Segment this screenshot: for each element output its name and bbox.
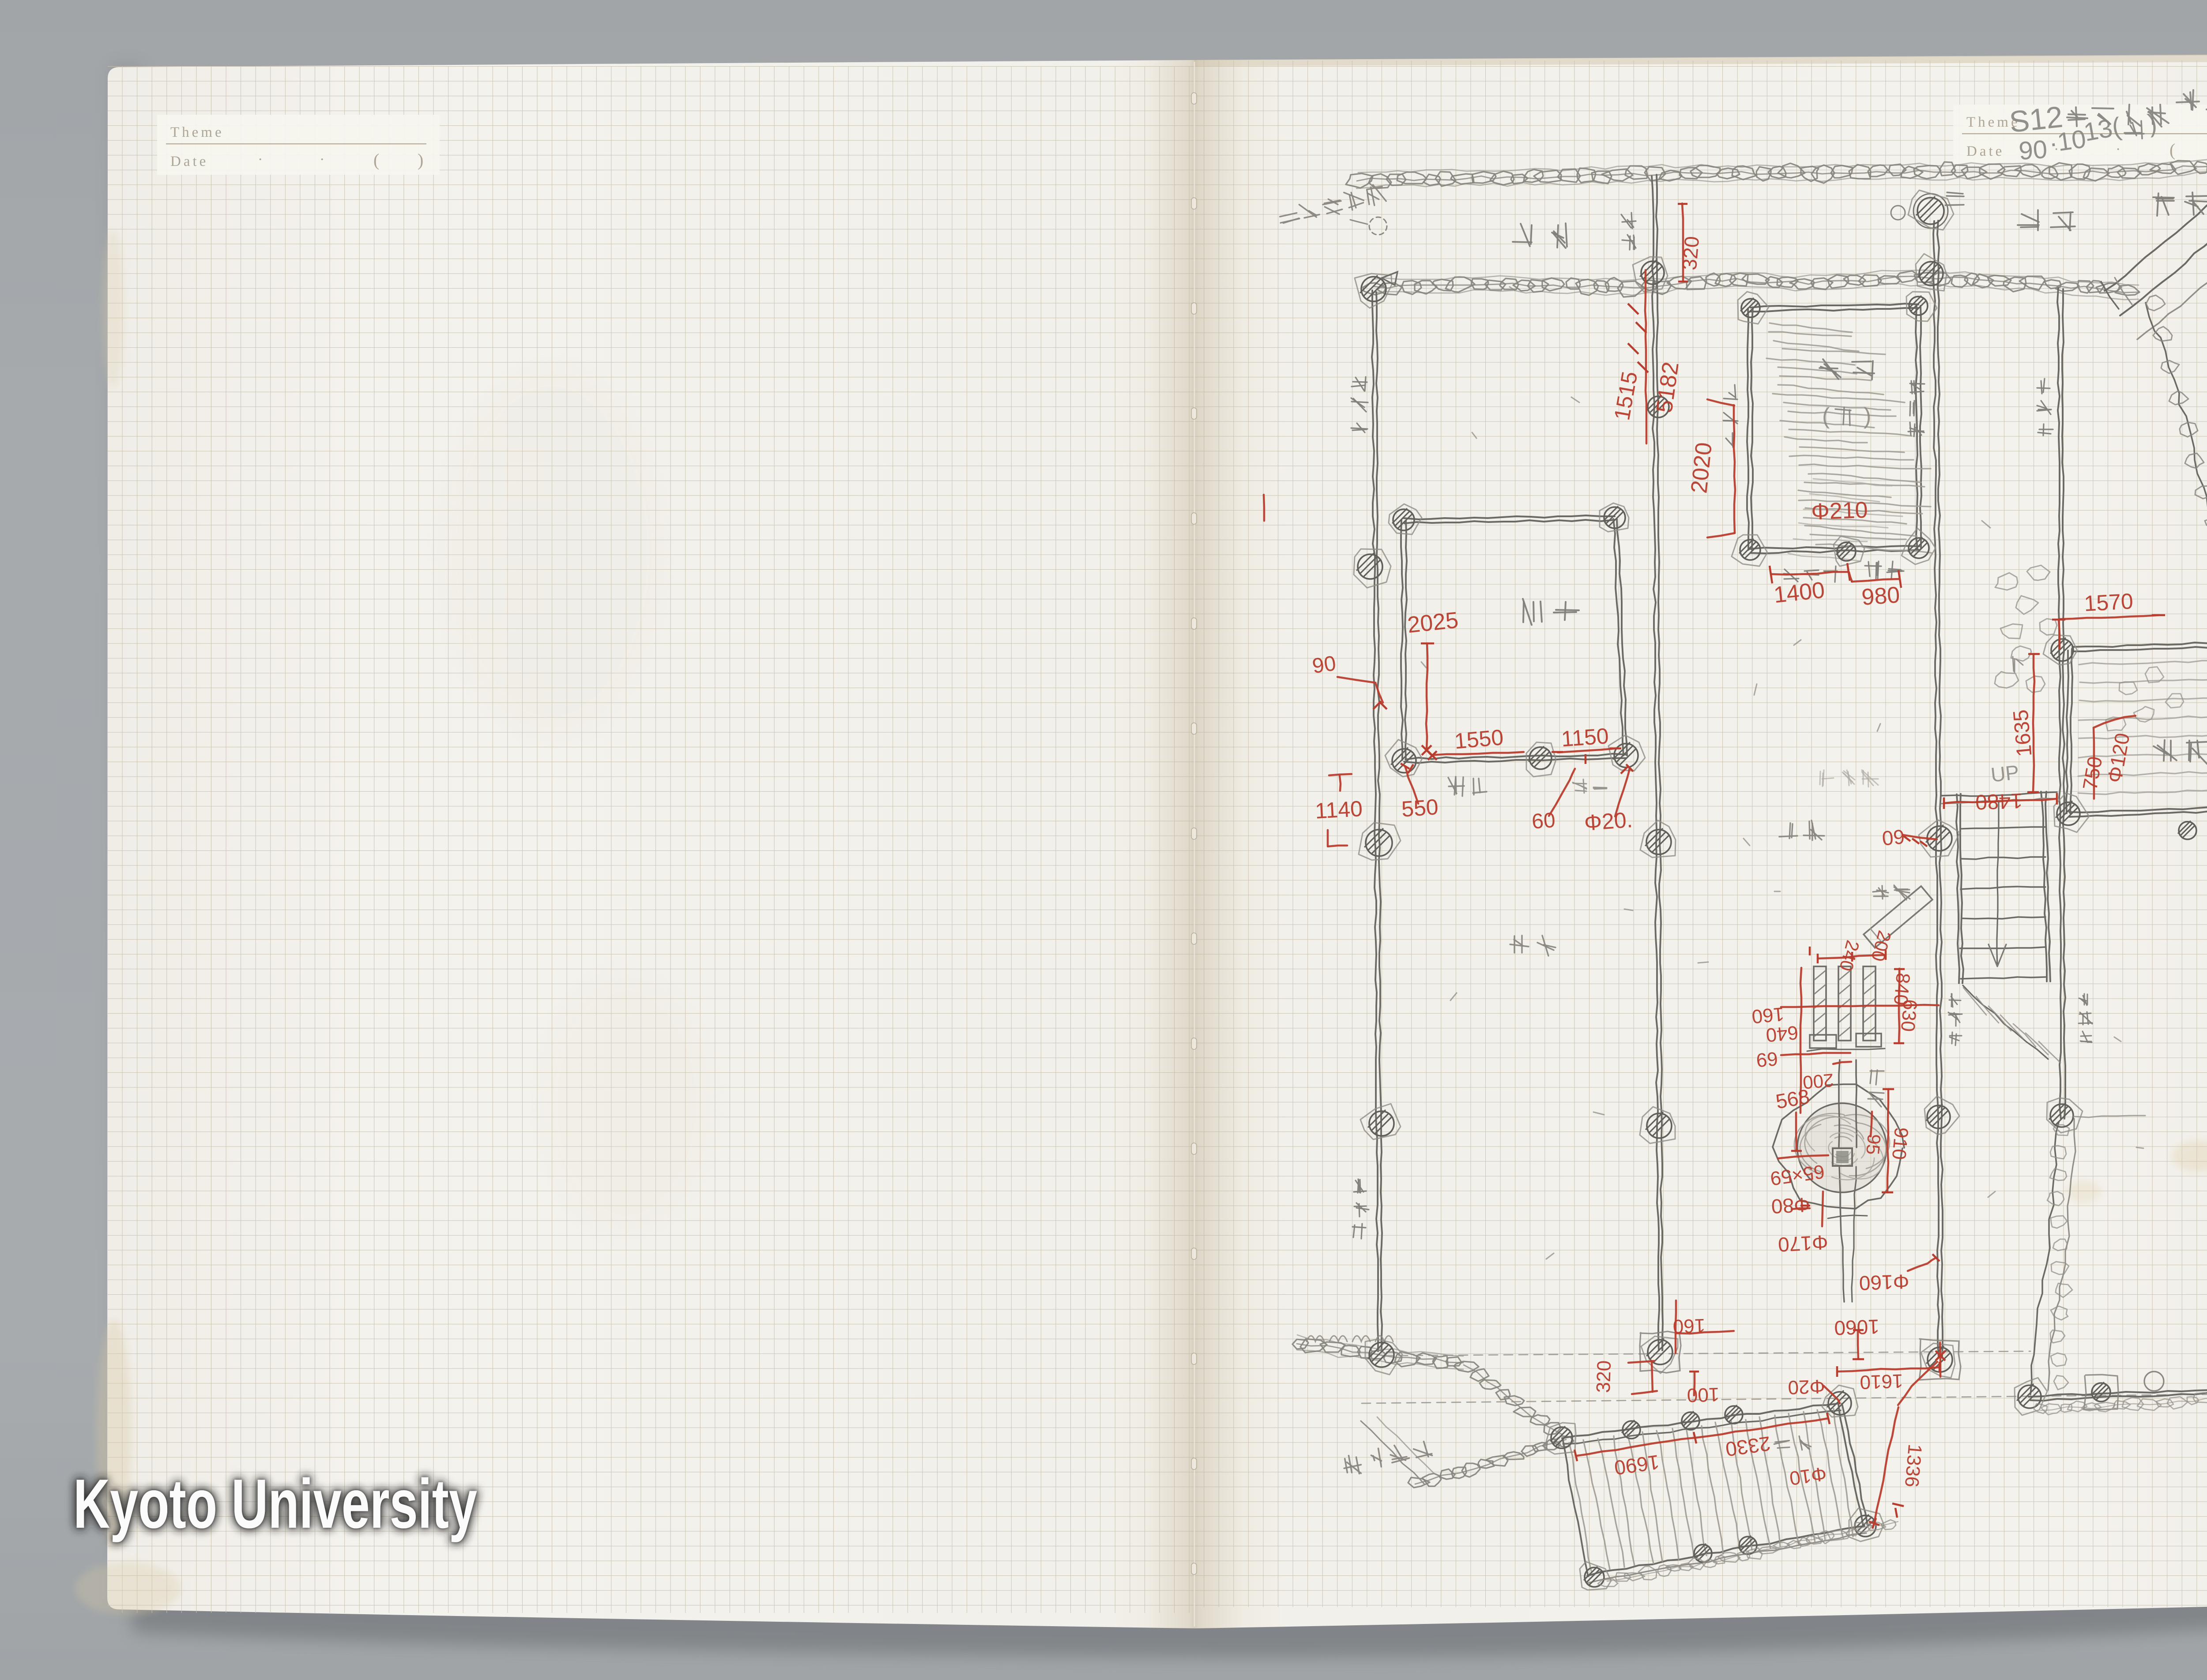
svg-text:UP: UP bbox=[1990, 761, 2020, 786]
svg-text:60: 60 bbox=[1881, 825, 1906, 850]
svg-text:Date: Date bbox=[1966, 143, 2004, 159]
svg-text:1060: 1060 bbox=[1834, 1315, 1880, 1340]
svg-text:1480: 1480 bbox=[1975, 789, 2023, 814]
svg-text:(: ( bbox=[373, 150, 379, 170]
svg-text:95: 95 bbox=[1862, 1133, 1885, 1156]
svg-text:60: 60 bbox=[1531, 808, 1556, 834]
svg-text:320: 320 bbox=[1593, 1360, 1616, 1393]
svg-text:Φ170: Φ170 bbox=[1778, 1231, 1829, 1256]
svg-text:·: · bbox=[2116, 141, 2120, 158]
svg-text:Date: Date bbox=[170, 154, 208, 169]
svg-text:69: 69 bbox=[1755, 1048, 1779, 1071]
svg-text:1150: 1150 bbox=[1560, 723, 1609, 751]
svg-text:): ) bbox=[1864, 403, 1871, 429]
svg-text:320: 320 bbox=[1678, 235, 1703, 271]
svg-text:90: 90 bbox=[2018, 135, 2048, 165]
svg-text:90: 90 bbox=[1311, 652, 1337, 678]
svg-text:640: 640 bbox=[1765, 1022, 1799, 1046]
svg-text:1570: 1570 bbox=[2083, 589, 2134, 616]
svg-text:·: · bbox=[258, 151, 263, 168]
svg-text:1140: 1140 bbox=[1314, 796, 1363, 823]
svg-text:Theme: Theme bbox=[170, 124, 224, 140]
svg-text:Φ160: Φ160 bbox=[1859, 1270, 1909, 1295]
svg-text:·10: ·10 bbox=[2047, 124, 2088, 158]
svg-text:980: 980 bbox=[1861, 582, 1901, 610]
svg-text:550: 550 bbox=[1401, 794, 1439, 822]
svg-text:Φ210: Φ210 bbox=[1811, 497, 1868, 525]
svg-text:2020: 2020 bbox=[1686, 441, 1717, 495]
svg-text:·: · bbox=[320, 151, 324, 168]
svg-text:1550: 1550 bbox=[1454, 725, 1505, 753]
svg-text:630: 630 bbox=[1897, 999, 1921, 1033]
svg-text:1336: 1336 bbox=[1901, 1443, 1926, 1488]
svg-text:1610: 1610 bbox=[1860, 1370, 1904, 1393]
svg-text:(: ( bbox=[2169, 140, 2175, 160]
svg-text:910: 910 bbox=[1888, 1127, 1912, 1161]
svg-text:Φ20: Φ20 bbox=[1788, 1376, 1826, 1398]
svg-text:100: 100 bbox=[1687, 1383, 1720, 1406]
svg-text:1635: 1635 bbox=[2009, 709, 2037, 758]
svg-text:Φ20.: Φ20. bbox=[1583, 807, 1633, 835]
svg-text:(: ( bbox=[1822, 403, 1830, 429]
svg-text:1400: 1400 bbox=[1773, 577, 1826, 608]
svg-text:2025: 2025 bbox=[1406, 607, 1460, 638]
svg-text:): ) bbox=[418, 150, 423, 170]
svg-text:Kyoto University: Kyoto University bbox=[73, 1465, 477, 1543]
